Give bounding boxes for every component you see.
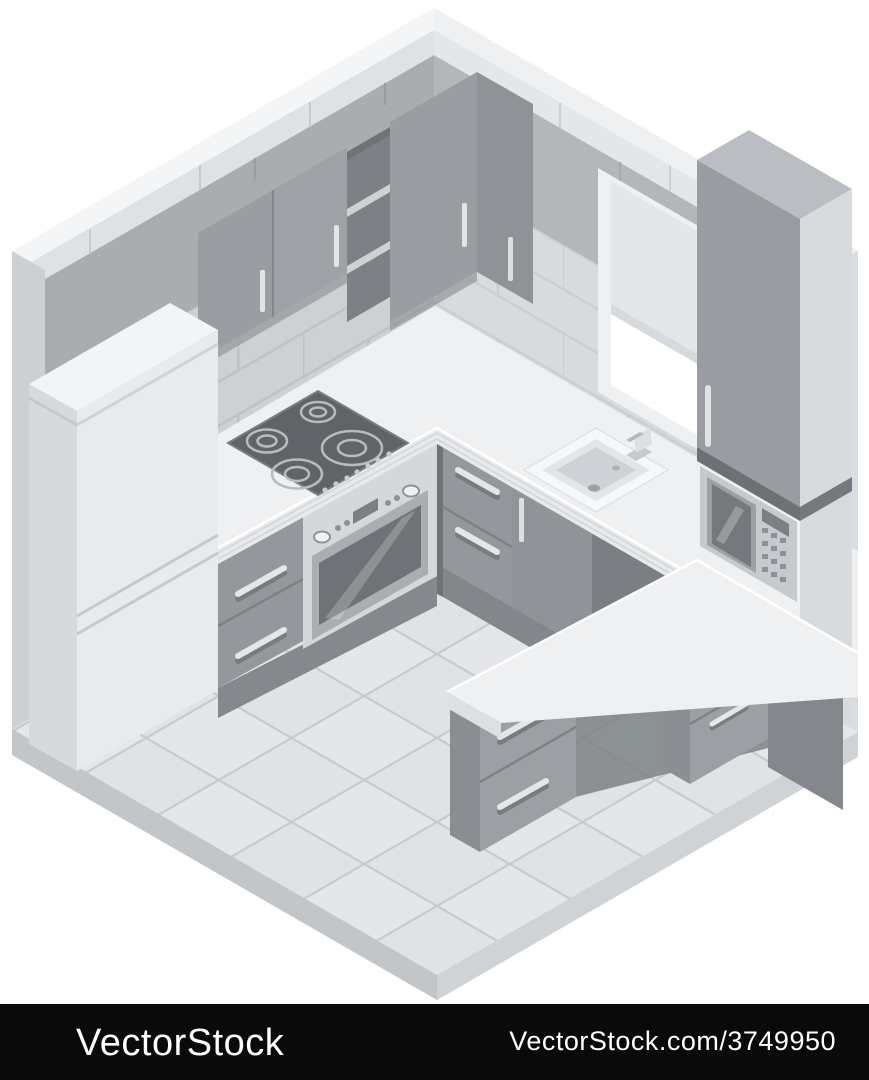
sink-drain [588, 485, 600, 492]
fridge-side [29, 384, 77, 771]
stock-image-page: VectorStock VectorStock.com/3749950 [0, 0, 869, 1080]
pantry-door [697, 160, 800, 507]
corner-edge [437, 444, 443, 597]
kitchen-isometric-illustration: VectorStock VectorStock.com/3749950 [0, 0, 869, 1080]
refrigerator [29, 303, 218, 771]
corner-cabinet-right-door [477, 72, 533, 304]
open-shelves [347, 127, 390, 322]
sink-door-handle [519, 498, 524, 542]
watermark-url: VectorStock.com/3749950 [509, 1026, 836, 1056]
watermark-brand: VectorStock [76, 1022, 285, 1064]
watermark-bar: VectorStock VectorStock.com/3749950 [0, 1004, 869, 1080]
pantry-handle [705, 385, 711, 447]
